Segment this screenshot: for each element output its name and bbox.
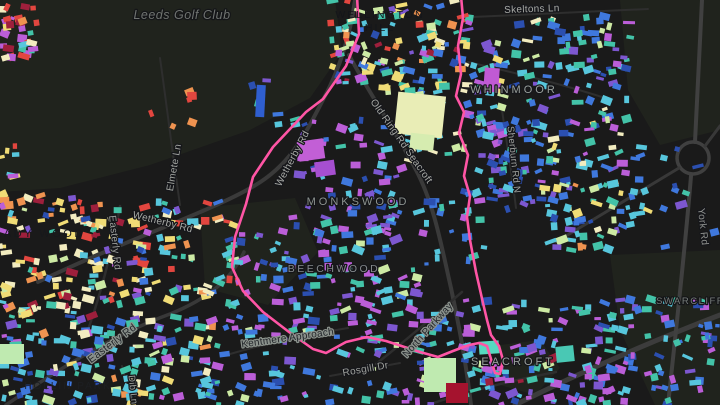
building bbox=[337, 302, 341, 306]
building bbox=[374, 255, 386, 261]
building bbox=[399, 281, 409, 288]
building bbox=[293, 222, 299, 230]
building bbox=[511, 50, 521, 59]
building bbox=[498, 158, 503, 164]
building bbox=[60, 208, 66, 213]
building bbox=[521, 300, 527, 308]
building bbox=[310, 282, 320, 289]
building bbox=[302, 291, 314, 296]
building bbox=[68, 195, 76, 202]
building bbox=[580, 382, 585, 388]
building bbox=[476, 98, 482, 104]
building bbox=[106, 354, 113, 362]
building bbox=[348, 320, 358, 326]
building bbox=[444, 42, 449, 47]
building bbox=[380, 223, 390, 228]
building bbox=[0, 197, 9, 203]
building bbox=[537, 158, 544, 166]
building bbox=[417, 360, 424, 365]
poi-label-leeds-golf-club: Leeds Golf Club bbox=[133, 8, 230, 22]
building bbox=[631, 352, 635, 359]
building bbox=[161, 366, 169, 373]
building bbox=[284, 251, 289, 255]
building bbox=[439, 204, 444, 212]
building bbox=[226, 275, 232, 283]
building bbox=[272, 112, 283, 117]
building bbox=[555, 62, 562, 70]
building bbox=[37, 306, 41, 310]
building bbox=[552, 244, 561, 250]
building bbox=[424, 262, 428, 265]
building bbox=[435, 254, 440, 261]
building bbox=[271, 263, 279, 268]
building bbox=[89, 273, 98, 277]
building bbox=[485, 378, 494, 386]
building-large bbox=[555, 345, 575, 363]
area-label-monkswood: MONKSWOOD bbox=[307, 196, 410, 208]
building bbox=[330, 225, 339, 234]
building bbox=[165, 236, 175, 242]
building bbox=[336, 26, 343, 33]
building bbox=[628, 324, 634, 328]
building bbox=[70, 322, 77, 330]
building bbox=[261, 274, 267, 281]
building bbox=[343, 32, 350, 39]
building bbox=[323, 257, 331, 263]
building bbox=[489, 177, 494, 183]
building-large bbox=[446, 383, 468, 403]
building bbox=[334, 45, 339, 51]
building bbox=[432, 74, 443, 79]
building bbox=[362, 70, 374, 75]
building bbox=[378, 84, 390, 91]
building bbox=[269, 370, 280, 377]
building bbox=[183, 284, 191, 290]
building bbox=[26, 319, 35, 322]
building bbox=[181, 254, 186, 260]
building bbox=[144, 267, 154, 276]
building bbox=[707, 340, 713, 348]
building bbox=[604, 33, 612, 42]
building bbox=[422, 46, 426, 51]
building bbox=[331, 245, 336, 252]
building bbox=[411, 267, 415, 272]
building bbox=[670, 384, 679, 392]
building bbox=[329, 36, 334, 43]
building bbox=[424, 220, 429, 227]
building bbox=[498, 139, 503, 144]
building bbox=[551, 327, 563, 331]
building bbox=[330, 315, 338, 322]
building bbox=[704, 321, 713, 330]
building bbox=[548, 318, 552, 323]
building bbox=[415, 397, 420, 405]
building bbox=[593, 381, 603, 389]
building bbox=[80, 206, 85, 214]
building bbox=[129, 347, 134, 353]
building bbox=[139, 278, 148, 285]
building bbox=[87, 397, 92, 403]
building bbox=[53, 283, 59, 289]
building bbox=[80, 252, 88, 258]
building bbox=[46, 301, 57, 309]
building bbox=[402, 400, 410, 403]
area-label-whinmoor: WHINMOOR bbox=[470, 84, 558, 96]
building bbox=[502, 370, 509, 375]
building bbox=[327, 19, 334, 26]
building bbox=[54, 338, 66, 343]
building bbox=[475, 216, 484, 223]
building bbox=[114, 207, 122, 213]
building bbox=[49, 213, 54, 217]
building bbox=[439, 83, 450, 90]
building bbox=[596, 17, 604, 24]
building bbox=[236, 238, 245, 246]
building bbox=[135, 345, 143, 349]
building bbox=[148, 393, 154, 400]
building bbox=[188, 254, 195, 261]
building bbox=[335, 49, 342, 56]
building bbox=[284, 357, 296, 365]
building bbox=[505, 377, 515, 383]
building-large bbox=[255, 85, 266, 117]
building bbox=[514, 20, 525, 29]
building bbox=[526, 395, 532, 400]
building bbox=[361, 396, 371, 404]
building bbox=[112, 388, 121, 396]
building bbox=[464, 325, 471, 331]
building bbox=[27, 30, 33, 36]
building bbox=[583, 14, 590, 21]
building bbox=[623, 21, 635, 24]
building bbox=[18, 25, 26, 32]
building bbox=[574, 62, 585, 69]
building bbox=[532, 119, 540, 127]
building bbox=[91, 204, 99, 212]
building bbox=[613, 61, 622, 68]
building bbox=[689, 379, 701, 385]
building bbox=[508, 320, 517, 327]
building bbox=[523, 131, 533, 136]
building bbox=[272, 299, 284, 306]
building bbox=[91, 325, 103, 334]
building bbox=[48, 207, 55, 212]
road-label-skeltons-ln: Skeltons Ln bbox=[504, 3, 560, 16]
building bbox=[543, 132, 549, 137]
building bbox=[715, 324, 720, 328]
building bbox=[334, 334, 340, 338]
building bbox=[594, 317, 601, 320]
building bbox=[12, 152, 20, 157]
building bbox=[620, 398, 628, 405]
building bbox=[263, 351, 269, 355]
area-label-wellington-hill-2: HILL bbox=[365, 22, 395, 34]
building bbox=[41, 340, 46, 345]
building bbox=[620, 308, 624, 314]
building bbox=[273, 275, 283, 283]
building bbox=[354, 133, 364, 141]
building bbox=[595, 336, 603, 344]
building bbox=[580, 244, 587, 250]
building bbox=[271, 366, 278, 372]
building bbox=[565, 42, 570, 49]
building bbox=[200, 357, 211, 363]
map-canvas[interactable]: Leeds Golf ClubSkeltons LnElmete LnWethe… bbox=[0, 0, 720, 405]
area-label-wellington-hill-1: WELLINGTON bbox=[335, 9, 424, 21]
area-label-swarcliffe: SWARCLIFFE bbox=[656, 296, 720, 307]
building bbox=[663, 335, 668, 342]
building bbox=[244, 373, 256, 380]
building bbox=[559, 48, 569, 55]
building bbox=[463, 42, 470, 50]
building bbox=[478, 153, 485, 158]
building bbox=[348, 210, 357, 216]
area-label-seacroft: SEACROFT bbox=[471, 356, 555, 368]
building bbox=[356, 281, 364, 288]
building bbox=[424, 198, 436, 205]
building bbox=[323, 137, 329, 142]
building bbox=[274, 121, 282, 128]
area-label-hollin-park: HOLLIN PARK bbox=[24, 381, 111, 392]
building bbox=[624, 96, 629, 103]
building bbox=[642, 306, 652, 312]
building bbox=[379, 178, 391, 185]
building bbox=[612, 47, 619, 51]
building bbox=[181, 355, 190, 363]
building-large bbox=[0, 344, 24, 364]
building bbox=[48, 254, 58, 263]
building bbox=[8, 173, 19, 178]
building bbox=[534, 61, 544, 67]
building bbox=[417, 312, 424, 320]
building bbox=[559, 130, 569, 137]
building-large bbox=[314, 160, 336, 178]
building bbox=[339, 246, 348, 255]
building bbox=[325, 187, 333, 192]
building bbox=[308, 316, 320, 325]
building bbox=[187, 92, 197, 100]
building bbox=[256, 276, 261, 282]
building bbox=[565, 226, 576, 232]
building bbox=[233, 260, 243, 266]
building bbox=[358, 117, 363, 124]
building bbox=[66, 277, 73, 282]
building bbox=[168, 266, 175, 272]
building bbox=[546, 156, 553, 164]
building bbox=[620, 55, 627, 60]
building bbox=[635, 176, 644, 183]
building bbox=[572, 100, 584, 105]
building bbox=[342, 81, 348, 84]
building bbox=[33, 19, 39, 26]
building bbox=[579, 232, 587, 240]
building bbox=[6, 21, 14, 29]
building bbox=[706, 358, 714, 366]
building bbox=[201, 217, 209, 225]
area-label-lady-wood: LADY WOOD bbox=[0, 228, 85, 240]
map-svg: Leeds Golf ClubSkeltons LnElmete LnWethe… bbox=[0, 0, 720, 405]
building bbox=[426, 22, 436, 30]
building bbox=[92, 265, 103, 273]
building bbox=[88, 279, 96, 285]
building bbox=[239, 232, 245, 237]
building bbox=[611, 216, 616, 223]
building bbox=[444, 152, 452, 156]
building bbox=[520, 154, 529, 161]
building bbox=[591, 170, 598, 178]
building bbox=[26, 399, 37, 405]
building bbox=[536, 196, 546, 201]
building bbox=[545, 204, 550, 207]
building bbox=[133, 311, 144, 316]
building bbox=[348, 313, 356, 321]
building bbox=[258, 324, 264, 328]
building bbox=[644, 333, 651, 339]
building bbox=[606, 337, 613, 343]
building bbox=[376, 390, 384, 398]
building bbox=[71, 311, 77, 315]
building bbox=[608, 145, 616, 150]
building bbox=[522, 170, 526, 175]
building bbox=[351, 162, 361, 169]
building bbox=[544, 378, 554, 383]
building bbox=[618, 190, 623, 196]
building bbox=[59, 244, 67, 251]
building bbox=[35, 370, 45, 379]
building bbox=[262, 78, 271, 82]
building bbox=[33, 332, 39, 336]
building bbox=[1, 334, 7, 338]
building bbox=[556, 149, 561, 154]
building bbox=[5, 148, 10, 154]
building bbox=[617, 209, 625, 214]
building bbox=[30, 6, 36, 11]
building bbox=[528, 389, 533, 395]
building bbox=[449, 200, 455, 204]
building bbox=[416, 21, 424, 28]
building bbox=[341, 231, 353, 238]
building bbox=[409, 321, 419, 328]
building bbox=[359, 143, 367, 148]
area-label-beechwood: BEECHWOOD bbox=[288, 263, 381, 275]
building bbox=[350, 287, 355, 292]
building bbox=[617, 160, 628, 167]
building bbox=[621, 169, 630, 176]
building bbox=[366, 237, 373, 244]
building bbox=[551, 222, 558, 230]
building bbox=[246, 329, 258, 334]
building bbox=[312, 119, 317, 124]
building bbox=[181, 295, 189, 301]
building bbox=[428, 68, 438, 73]
building bbox=[132, 277, 138, 282]
building bbox=[72, 301, 81, 310]
building bbox=[548, 368, 552, 371]
building bbox=[387, 324, 398, 332]
building bbox=[145, 318, 155, 325]
building bbox=[585, 374, 592, 379]
building bbox=[13, 143, 17, 149]
building bbox=[293, 302, 300, 310]
building bbox=[156, 198, 162, 205]
